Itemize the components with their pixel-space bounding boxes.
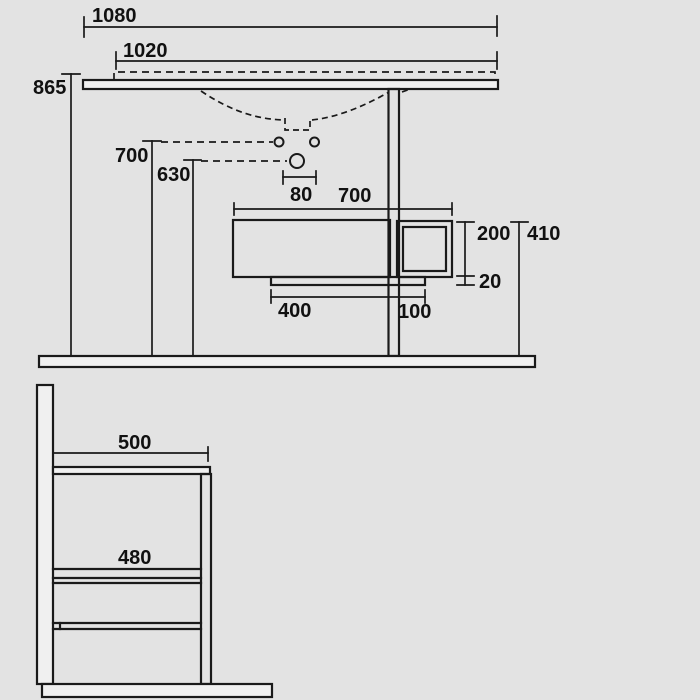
dim-label-mixer-hole-height: 630 — [157, 164, 190, 186]
dim-label-cabinet-depth: 480 — [118, 547, 151, 569]
floor-slab-side — [42, 684, 272, 697]
dim-overall-height: 865 — [33, 74, 80, 356]
dim-top-width: 1020 — [116, 40, 497, 69]
front-elevation-view: 1080 1020 865 — [33, 5, 560, 367]
dim-label-plinth-width: 400 — [278, 300, 311, 322]
dim-label-upper-holes-height: 700 — [115, 145, 148, 167]
dim-label-hole-spacing: 80 — [290, 184, 312, 206]
dim-label-side-box-width: 100 — [398, 301, 431, 323]
back-panel — [37, 385, 53, 684]
dim-label-overall-height: 865 — [33, 77, 66, 99]
dim-top-depth: 500 — [53, 432, 208, 461]
dim-cabinet-width: 700 — [234, 185, 452, 215]
tap-hole-left — [275, 138, 284, 147]
dim-mixer-hole-height: 630 — [157, 160, 287, 356]
side-box-inner — [403, 227, 446, 271]
dim-label-unit-total-height: 410 — [527, 223, 560, 245]
side-elevation-view: 500 480 — [37, 385, 272, 697]
dim-label-plinth-gap: 20 — [479, 271, 501, 293]
basin-curve-left — [201, 91, 283, 120]
dim-overall-width: 1080 — [84, 5, 497, 37]
dim-label-cabinet-width: 700 — [338, 185, 371, 207]
technical-drawing-canvas: 1080 1020 865 — [0, 0, 700, 700]
lower-rail — [53, 623, 201, 629]
tap-hole-right — [310, 138, 319, 147]
dim-hole-spacing: 80 — [283, 171, 316, 206]
front-panel-side — [201, 474, 211, 684]
dim-upper-holes-height: 700 — [115, 141, 273, 356]
dashed-top-deck-outline — [114, 72, 495, 80]
dim-side-box-height: 200 — [457, 222, 510, 276]
dimension-drawing: 1080 1020 865 — [0, 0, 700, 700]
countertop-slab-side — [53, 467, 210, 474]
shelf-rails — [53, 569, 201, 583]
dim-plinth-gap: 20 — [457, 271, 501, 293]
dim-label-side-box-height: 200 — [477, 223, 510, 245]
drawer-cabinet — [233, 220, 390, 277]
dim-plinth-width: 400 100 — [271, 290, 431, 323]
side-box-outer — [397, 221, 452, 277]
dim-label-top-width: 1020 — [123, 40, 168, 62]
drain-dashed-box — [285, 118, 310, 130]
dim-label-overall-width: 1080 — [92, 5, 137, 27]
floor-slab-front — [39, 356, 535, 367]
basin-dashed-outline — [201, 89, 410, 130]
basin-curve-right — [312, 92, 389, 120]
dim-unit-total-height: 410 — [511, 222, 560, 356]
plinth-rail — [271, 277, 425, 285]
mixer-hole — [290, 154, 304, 168]
dim-label-top-depth: 500 — [118, 432, 151, 454]
countertop-slab — [83, 80, 498, 89]
